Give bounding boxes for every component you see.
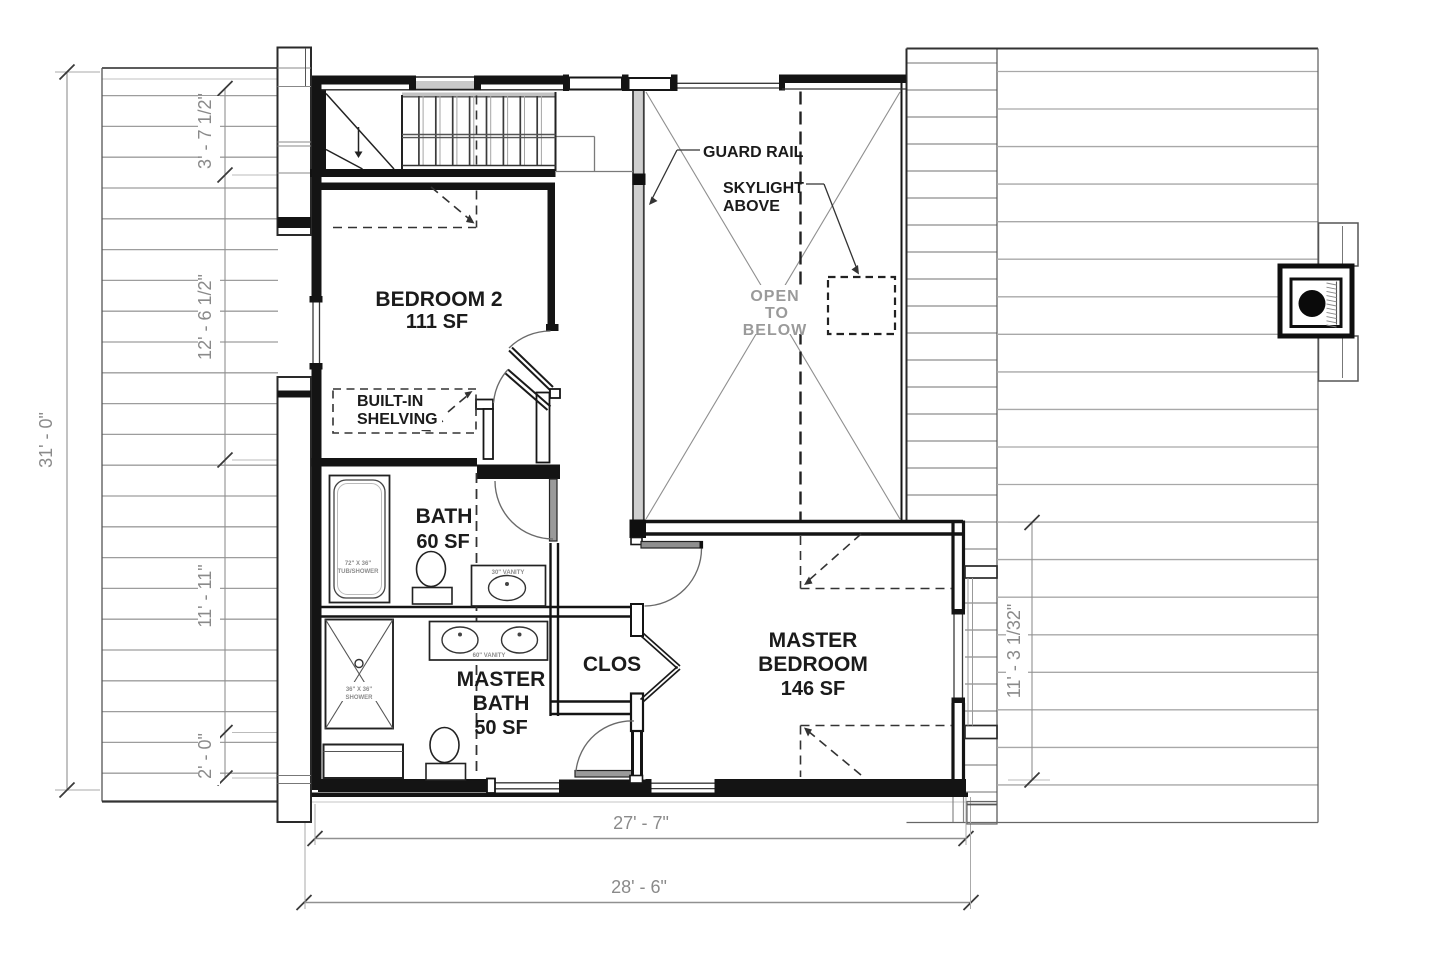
svg-text:36" X 36": 36" X 36" [346, 687, 373, 693]
svg-text:60" VANITY: 60" VANITY [473, 653, 506, 659]
svg-text:BATH: BATH [473, 692, 530, 715]
svg-text:CLOS: CLOS [583, 653, 641, 676]
svg-text:27' - 7": 27' - 7" [613, 813, 669, 833]
svg-text:BEDROOM: BEDROOM [758, 653, 868, 676]
svg-text:MASTER: MASTER [769, 629, 858, 652]
svg-text:72" X 36": 72" X 36" [345, 561, 372, 567]
svg-text:ABOVE: ABOVE [723, 198, 780, 215]
svg-text:SHELVING: SHELVING [357, 411, 438, 428]
svg-text:60 SF: 60 SF [416, 531, 469, 553]
svg-text:3' - 7 1/2": 3' - 7 1/2" [195, 93, 215, 169]
svg-text:SKYLIGHT: SKYLIGHT [723, 180, 804, 197]
svg-text:OPEN: OPEN [750, 288, 799, 305]
svg-text:146 SF: 146 SF [781, 678, 845, 700]
svg-text:2' - 0": 2' - 0" [195, 733, 215, 779]
svg-text:BEDROOM 2: BEDROOM 2 [375, 288, 502, 311]
svg-text:SHOWER: SHOWER [346, 695, 374, 701]
svg-text:GUARD RAIL: GUARD RAIL [703, 144, 804, 161]
svg-text:50 SF: 50 SF [474, 717, 527, 739]
svg-text:31' - 0": 31' - 0" [36, 412, 56, 468]
svg-text:111 SF: 111 SF [406, 311, 468, 333]
svg-text:BELOW: BELOW [743, 322, 808, 339]
svg-text:12' - 6 1/2": 12' - 6 1/2" [195, 274, 215, 360]
svg-text:MASTER: MASTER [457, 668, 546, 691]
svg-text:TUB/SHOWER: TUB/SHOWER [338, 569, 380, 575]
svg-text:TO: TO [765, 305, 789, 322]
svg-text:BATH: BATH [416, 505, 473, 528]
svg-text:11' - 11": 11' - 11" [195, 564, 215, 627]
svg-text:28' - 6": 28' - 6" [611, 877, 667, 897]
svg-text:BUILT-IN: BUILT-IN [357, 393, 423, 410]
svg-text:11' - 3 1/32": 11' - 3 1/32" [1004, 604, 1024, 699]
